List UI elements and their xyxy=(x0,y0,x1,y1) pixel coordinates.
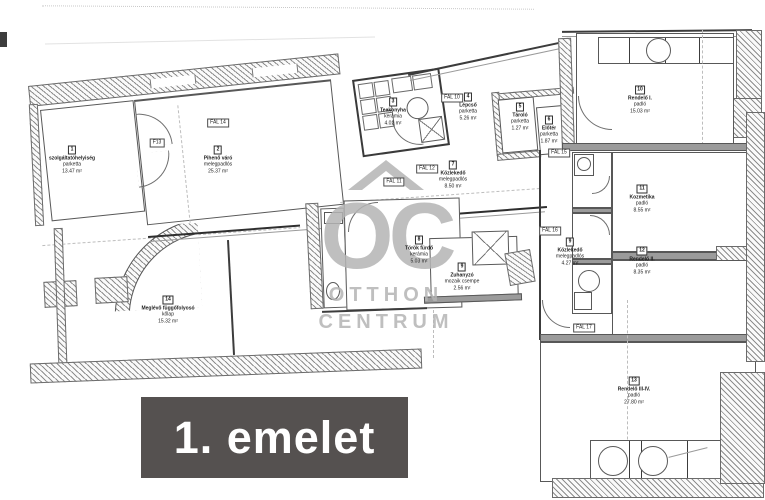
duct-shaft xyxy=(504,249,535,286)
sink xyxy=(638,446,668,476)
wall-band-solid xyxy=(562,143,758,151)
gallery-partition xyxy=(227,240,235,355)
floor-banner: 1. emelet xyxy=(141,397,408,478)
room-number-badge: 10 xyxy=(635,86,646,95)
room-label: 9Közlekedőmelegpadlós4.27 m² xyxy=(556,238,584,267)
room-number-badge: 12 xyxy=(637,247,648,256)
room-number-badge: 1 xyxy=(68,146,76,155)
room-area: 5.03 m² xyxy=(405,258,433,265)
room-area: 27.80 m² xyxy=(618,399,651,406)
room-number-badge: 7 xyxy=(449,161,457,170)
room-label: 10Rendelő I.padló15.03 m² xyxy=(628,86,652,115)
wall-tag: FAL 14 xyxy=(207,119,229,128)
floor-banner-text: 1. emelet xyxy=(174,412,376,464)
room-area: 8.50 m² xyxy=(439,183,467,190)
room-floor-type: parketta xyxy=(459,109,477,116)
kitchen-counter-cell xyxy=(358,82,375,99)
counter-divider xyxy=(629,38,630,63)
shower-tray xyxy=(472,231,510,266)
wall-tag: FAL 16 xyxy=(539,227,561,236)
wall-band-solid xyxy=(540,334,758,342)
wall-tag: F13 xyxy=(150,139,165,148)
room-label: 12Rendelő II.padló8.35 m² xyxy=(629,247,654,276)
room-label: 3Teakonyhakerámia4.02 m² xyxy=(380,98,406,127)
room-area: 15.03 m² xyxy=(628,108,652,115)
room-area: 15.32 m² xyxy=(141,318,194,325)
outer-wall-right-main xyxy=(746,112,765,362)
room-floor-type: melegpadlós xyxy=(556,254,584,261)
room-label: 13Rendelő III-IV.padló27.80 m² xyxy=(618,377,651,406)
outer-wall-right-lower xyxy=(720,372,765,484)
kitchen-counter-cell xyxy=(362,114,379,131)
sink-unit xyxy=(574,292,592,310)
sink xyxy=(598,446,628,476)
stair-landing xyxy=(418,116,445,143)
wall-tag: FAL 10 xyxy=(441,94,463,103)
corridor-north-wall-inner xyxy=(410,47,565,81)
wall-pier xyxy=(94,276,128,304)
room-area: 4.02 m² xyxy=(380,120,406,127)
room-label: 2Pihenő várómelegpadlós25.37 m² xyxy=(204,146,233,175)
sink xyxy=(577,157,591,171)
room-label: 7Közlekedőmelegpadlós8.50 m² xyxy=(439,161,467,190)
room-number-badge: 3 xyxy=(389,98,397,107)
wall-tag: FAL 17 xyxy=(573,324,595,333)
room-number-badge: 13 xyxy=(629,377,640,386)
wall-tag: FAL 11 xyxy=(383,178,404,187)
wall-tag: FAL 12 xyxy=(416,165,438,174)
outer-wall-bottom-left xyxy=(30,348,422,383)
room-label: 9Zuhanyzómozaik csempe2.56 m² xyxy=(445,263,480,292)
kitchen-counter-cell xyxy=(360,98,377,115)
grid-line xyxy=(433,310,434,358)
room-label: 11Kozmetikapadló8.55 m² xyxy=(629,185,654,214)
room-floor-type: parketta xyxy=(511,119,529,126)
room-area: 2.56 m² xyxy=(445,285,480,292)
room-area: 25.37 m² xyxy=(204,168,233,175)
room-label: 5Tárolóparketta1.27 m² xyxy=(511,103,529,132)
room-area: 5.26 m² xyxy=(459,115,477,122)
scan-artifact-line xyxy=(42,5,534,9)
scan-artifact-mark xyxy=(0,32,7,47)
room-number-badge: 9 xyxy=(566,238,574,247)
room-label: 6Előtérparketta1.87 m² xyxy=(540,116,558,145)
room-number-badge: 6 xyxy=(545,116,553,125)
toilet xyxy=(326,282,340,300)
room-number-badge: 9 xyxy=(458,263,466,272)
room-area: 8.55 m² xyxy=(629,207,654,214)
wall-band xyxy=(558,38,575,148)
room-label: 1szolgáltatóhelyiségparketta13.47 m² xyxy=(49,146,95,175)
room-label: 14Meglévő függőfolyosókőlap15.32 m² xyxy=(141,296,194,325)
wall-tag: FAL 15 xyxy=(548,149,570,158)
room-label: 8Török fürdőkerámia5.03 m² xyxy=(405,236,433,265)
wc-shelf xyxy=(324,212,343,224)
sink xyxy=(646,38,671,63)
room-area: 4.27 m² xyxy=(556,260,584,267)
corridor-north-wall xyxy=(408,40,567,75)
watermark-word-centrum: CENTRUM xyxy=(306,309,466,336)
room-area: 1.87 m² xyxy=(540,138,558,145)
room-number-badge: 5 xyxy=(516,103,524,112)
room-floor-type: mozaik csempe xyxy=(445,279,480,286)
grid-line xyxy=(702,30,703,145)
corridor-edge xyxy=(539,150,541,340)
room-area: 8.35 m² xyxy=(629,269,654,276)
scan-artifact-line xyxy=(45,37,375,45)
room-number-badge: 4 xyxy=(464,93,472,102)
room-floor-type: kerámia xyxy=(380,114,406,121)
room-number-badge: 14 xyxy=(163,296,174,305)
kitchen-appliance xyxy=(391,76,413,94)
room-area: 1.27 m² xyxy=(511,125,529,132)
room-area: 13.47 m² xyxy=(49,168,95,175)
room-floor-type: melegpadlós xyxy=(439,177,467,184)
door-arc xyxy=(542,300,570,328)
room-number-badge: 2 xyxy=(214,146,222,155)
toilet xyxy=(578,270,600,292)
room-floor-type: parketta xyxy=(540,132,558,139)
kitchen-counter-cell xyxy=(373,80,390,97)
room-number-badge: 8 xyxy=(415,236,423,245)
floorplan-canvas: OC OTTHON CENTRUM 1szolgáltatóhelyiségpa… xyxy=(0,0,765,500)
room-number-badge: 11 xyxy=(637,185,647,194)
counter-divider xyxy=(699,38,700,63)
room-floor-type: melegpadlós xyxy=(204,162,233,169)
